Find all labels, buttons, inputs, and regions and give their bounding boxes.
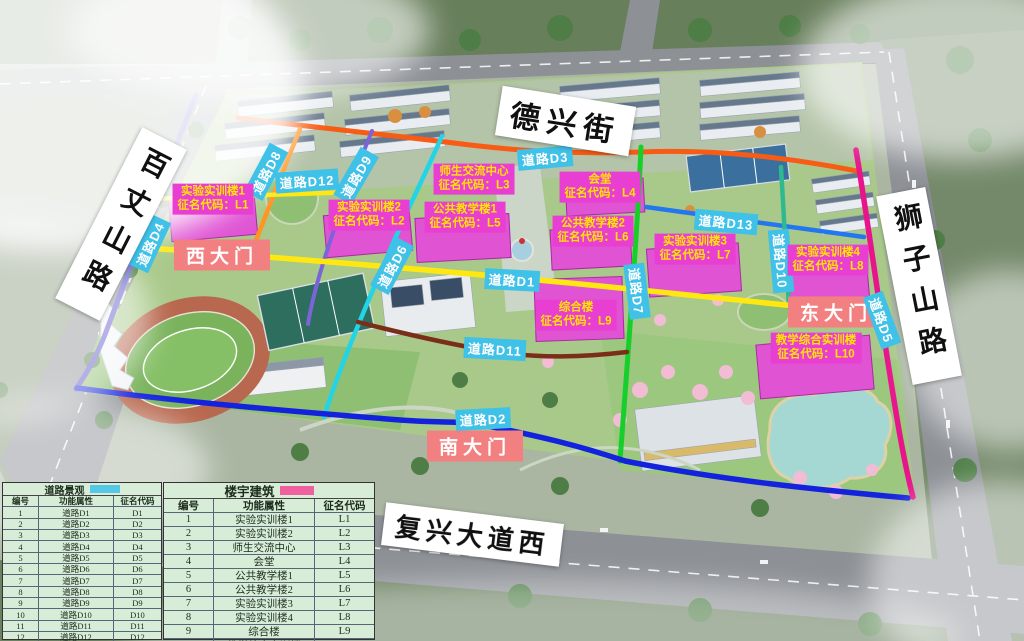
- legend-cell: D7: [114, 575, 161, 585]
- building-label-l3: 师生交流中心 征名代码：L3: [434, 164, 515, 195]
- building-legend-swatch: [280, 486, 314, 495]
- building-legend-body: 编号功能属性征名代码1实验实训楼1L12实验实训楼2L23师生交流中心L34会堂…: [164, 499, 374, 641]
- legend-cell: 1: [164, 513, 214, 526]
- road-legend-swatch: [90, 485, 120, 493]
- legend-cell: 9: [3, 598, 39, 608]
- legend-cell: 道路D8: [39, 587, 114, 597]
- legend-cell: 5: [3, 553, 39, 563]
- legend-cell: 12: [3, 632, 39, 641]
- building-name: 实验实训楼1: [178, 185, 249, 199]
- road-label-d1: 道路D1: [484, 268, 540, 292]
- legend-cell: 道路D1: [39, 507, 114, 517]
- legend-cell: 7: [164, 597, 214, 610]
- building-label-l7: 实验实训楼3 征名代码：L7: [655, 234, 736, 265]
- legend-cell: D9: [114, 598, 161, 608]
- legend-row: 5公共教学楼1L5: [164, 569, 374, 583]
- building-label-l1: 实验实训楼1 征名代码：L1: [173, 184, 254, 215]
- legend-cell: L1: [315, 513, 374, 526]
- legend-cell: 4: [3, 541, 39, 551]
- legend-cell: L4: [315, 555, 374, 568]
- legend-row: 8实验实训楼4L8: [164, 611, 374, 625]
- legend-cell: 实验实训楼3: [214, 597, 315, 610]
- road-label-d2: 道路D2: [455, 407, 511, 431]
- legend-row: 1实验实训楼1L1: [164, 513, 374, 527]
- legend-row: 9道路D9D9: [3, 598, 161, 609]
- building-label-l9: 综合楼 征名代码：L9: [536, 300, 617, 331]
- legend-row: 1道路D1D1: [3, 507, 161, 518]
- building-name: 会堂: [565, 173, 636, 187]
- legend-cell: 道路D9: [39, 598, 114, 608]
- building-code: 征名代码：L4: [565, 187, 636, 201]
- building-code: 征名代码：L1: [178, 199, 249, 213]
- building-legend-table: 楼宇建筑 编号功能属性征名代码1实验实训楼1L12实验实训楼2L23师生交流中心…: [163, 482, 375, 640]
- legend-cell: 公共教学楼1: [214, 569, 315, 582]
- building-name: 公共教学楼2: [558, 217, 629, 231]
- legend-cell: L7: [315, 597, 374, 610]
- legend-cell: 道路D10: [39, 609, 114, 619]
- legend-cell: 综合楼: [214, 625, 315, 638]
- building-name: 公共教学楼1: [430, 203, 501, 217]
- legend-cell: D6: [114, 564, 161, 574]
- legend-cell: 5: [164, 569, 214, 582]
- legend-cell: 师生交流中心: [214, 541, 315, 554]
- legend-row: 9综合楼L9: [164, 625, 374, 639]
- legend-cell: D8: [114, 587, 161, 597]
- building-name: 综合楼: [541, 301, 612, 315]
- road-legend-body: 编号功能属性征名代码1道路D1D12道路D2D23道路D3D34道路D4D45道…: [3, 496, 161, 641]
- building-label-l10: 教学综合实训楼 征名代码：L10: [771, 333, 862, 364]
- legend-cell: 公共教学楼2: [214, 583, 315, 596]
- legend-cell: D4: [114, 541, 161, 551]
- legend-row: 5道路D5D5: [3, 553, 161, 564]
- legend-row: 2实验实训楼2L2: [164, 527, 374, 541]
- legend-cell: D12: [114, 632, 161, 641]
- legend-cell: 2: [164, 527, 214, 540]
- legend-cell: D1: [114, 507, 161, 517]
- legend-cell: L3: [315, 541, 374, 554]
- building-code: 征名代码：L3: [439, 179, 510, 193]
- legend-cell: 征名代码: [114, 496, 161, 506]
- building-name: 实验实训楼4: [793, 246, 864, 260]
- legend-cell: 道路D5: [39, 553, 114, 563]
- legend-cell: 道路D3: [39, 530, 114, 540]
- legend-row: 6公共教学楼2L6: [164, 583, 374, 597]
- legend-cell: 征名代码: [315, 499, 374, 512]
- legend-cell: L9: [315, 625, 374, 638]
- building-code: 征名代码：L2: [334, 215, 405, 229]
- legend-cell: 编号: [164, 499, 214, 512]
- building-legend-title: 楼宇建筑: [224, 481, 274, 500]
- building-label-l2: 实验实训楼2 征名代码：L2: [329, 200, 410, 231]
- building-code: 征名代码：L9: [541, 315, 612, 329]
- building-label-l4: 会堂 征名代码：L4: [560, 172, 641, 203]
- legend-cell: D5: [114, 553, 161, 563]
- building-label-l5: 公共教学楼1 征名代码：L5: [425, 202, 506, 233]
- road-legend-title: 道路景观: [45, 482, 85, 497]
- legend-cell: 4: [164, 555, 214, 568]
- legend-row: 7实验实训楼3L7: [164, 597, 374, 611]
- building-name: 实验实训楼3: [660, 235, 731, 249]
- legend-cell: 8: [3, 587, 39, 597]
- legend-cell: 3: [164, 541, 214, 554]
- building-name: 教学综合实训楼: [776, 334, 857, 348]
- legend-cell: 1: [3, 507, 39, 517]
- gate-label-south: 南大门: [427, 431, 523, 462]
- building-code: 征名代码：L7: [660, 249, 731, 263]
- gate-label-west: 西大门: [174, 240, 270, 271]
- legend-cell: 6: [3, 564, 39, 574]
- legend-row: 12道路D12D12: [3, 632, 161, 641]
- legend-cell: L5: [315, 569, 374, 582]
- building-code: 征名代码：L10: [776, 348, 857, 362]
- legend-cell: 功能属性: [39, 496, 114, 506]
- road-legend-table: 道路景观 编号功能属性征名代码1道路D1D12道路D2D23道路D3D34道路D…: [2, 482, 162, 640]
- legend-header-row: 编号功能属性征名代码: [164, 499, 374, 513]
- legend-cell: 道路D4: [39, 541, 114, 551]
- legend-cell: 10: [3, 609, 39, 619]
- legend-cell: 6: [164, 583, 214, 596]
- legend-cell: D10: [114, 609, 161, 619]
- legend-cell: 3: [3, 530, 39, 540]
- building-code: 征名代码：L8: [793, 260, 864, 274]
- legend-cell: L6: [315, 583, 374, 596]
- legend-header-row: 编号功能属性征名代码: [3, 496, 161, 507]
- legend-cell: L2: [315, 527, 374, 540]
- legend-cell: 道路D12: [39, 632, 114, 641]
- legend-row: 3师生交流中心L3: [164, 541, 374, 555]
- legend-cell: 8: [164, 611, 214, 624]
- building-code: 征名代码：L6: [558, 231, 629, 245]
- building-code: 征名代码：L5: [430, 217, 501, 231]
- legend-row: 7道路D7D7: [3, 575, 161, 586]
- building-legend-title-row: 楼宇建筑: [164, 483, 374, 499]
- campus-masterplan-screenshot: 德兴街 百丈山路 狮子山路 复兴大道西 西大门 东大门 南大门 道路D1 道路D…: [0, 0, 1024, 641]
- legend-cell: D2: [114, 519, 161, 529]
- legend-cell: 2: [3, 519, 39, 529]
- legend-cell: 编号: [3, 496, 39, 506]
- legend-cell: 9: [164, 625, 214, 638]
- legend-row: 3道路D3D3: [3, 530, 161, 541]
- legend-cell: 道路D2: [39, 519, 114, 529]
- building-name: 实验实训楼2: [334, 201, 405, 215]
- legend-cell: 11: [3, 621, 39, 631]
- legend-cell: 实验实训楼4: [214, 611, 315, 624]
- legend-cell: D3: [114, 530, 161, 540]
- legend-cell: D11: [114, 621, 161, 631]
- road-label-d12: 道路D12: [275, 168, 339, 193]
- legend-cell: 功能属性: [214, 499, 315, 512]
- legend-row: 11道路D11D11: [3, 621, 161, 632]
- legend-row: 6道路D6D6: [3, 564, 161, 575]
- building-label-l6: 公共教学楼2 征名代码：L6: [553, 216, 634, 247]
- legend-cell: 道路D7: [39, 575, 114, 585]
- legend-row: 4会堂L4: [164, 555, 374, 569]
- legend-cell: 实验实训楼2: [214, 527, 315, 540]
- legend-cell: 实验实训楼1: [214, 513, 315, 526]
- legend-row: 2道路D2D2: [3, 519, 161, 530]
- legend-row: 10道路D10D10: [3, 609, 161, 620]
- legend-cell: 道路D11: [39, 621, 114, 631]
- building-label-l8: 实验实训楼4 征名代码：L8: [788, 245, 869, 276]
- legend-cell: 7: [3, 575, 39, 585]
- legend-cell: L8: [315, 611, 374, 624]
- legend-cell: 道路D6: [39, 564, 114, 574]
- legend-row: 4道路D4D4: [3, 541, 161, 552]
- legend-row: 8道路D8D8: [3, 587, 161, 598]
- building-name: 师生交流中心: [439, 165, 510, 179]
- legend-cell: 会堂: [214, 555, 315, 568]
- road-label-d11: 道路D11: [463, 337, 526, 361]
- road-legend-title-row: 道路景观: [3, 483, 161, 496]
